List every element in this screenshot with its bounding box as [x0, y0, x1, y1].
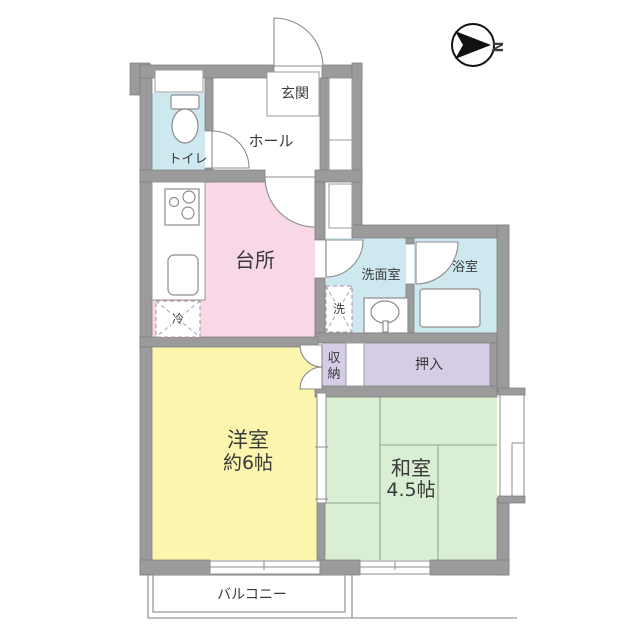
hall-label: ホール — [248, 132, 293, 150]
floor-plan: N 玄関 ホール トイレ 台所 洗面室 洗 冷 浴室 収 納 押入 洋室 約6帖… — [0, 0, 640, 640]
laundry-label: 洗 — [333, 302, 345, 316]
stove-icon — [165, 189, 199, 225]
sliding-door — [315, 393, 328, 503]
fridge-label: 冷 — [172, 312, 184, 326]
kitchen-label: 台所 — [235, 248, 275, 272]
western-room-label: 洋室 — [227, 428, 269, 452]
toilet-label: トイレ — [168, 152, 207, 167]
balcony-label: バルコニー — [217, 587, 287, 603]
toilet-icon — [171, 95, 199, 143]
north-arrow-icon: N — [452, 24, 504, 66]
japanese-room-size: 4.5帖 — [386, 479, 435, 501]
storage-label: 収 — [327, 351, 340, 366]
closet-divider — [346, 343, 364, 386]
western-room-size: 約6帖 — [223, 452, 273, 474]
wash-basin-icon — [364, 298, 408, 333]
compass-label: N — [489, 42, 504, 53]
balcony-outline — [148, 575, 517, 618]
door-arc — [274, 18, 323, 66]
floor-plan-page: N 玄関 ホール トイレ 台所 洗面室 洗 冷 浴室 収 納 押入 洋室 約6帖… — [0, 0, 640, 640]
japanese-room-label: 和室 — [391, 456, 431, 480]
oshiire-label: 押入 — [415, 357, 443, 373]
storage-label: 納 — [327, 367, 340, 382]
shoe-cabinet — [329, 78, 352, 228]
washroom-label: 洗面室 — [361, 267, 400, 283]
window — [210, 561, 320, 574]
bathroom-label: 浴室 — [452, 259, 478, 275]
kitchen-sink-icon — [168, 255, 198, 295]
window — [155, 70, 203, 92]
window — [360, 561, 430, 574]
door-arc — [212, 131, 249, 168]
genkan-label: 玄関 — [281, 85, 309, 102]
bathtub-icon — [420, 289, 480, 327]
bay-window — [498, 388, 525, 503]
